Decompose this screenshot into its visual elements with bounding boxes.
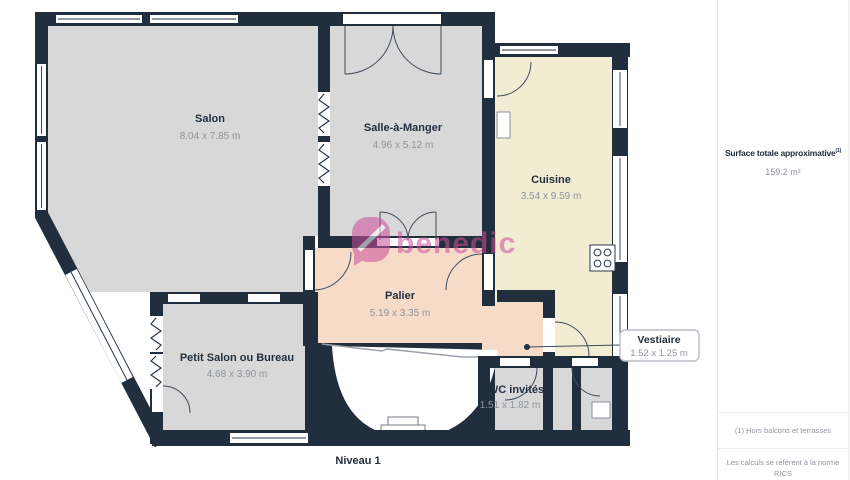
room-salon-floor (48, 26, 318, 292)
level-label: Niveau 1 (335, 455, 380, 467)
surface-title-sup: (1) (836, 148, 842, 154)
watermark-text: benedic (396, 227, 516, 260)
room-vestiaire-floor (482, 302, 543, 358)
floorplan-viewer: Salon 8.04 x 7.85 m Salle-à-Manger 4.96 … (0, 0, 850, 480)
label-salle-a-manger: Salle-à-Manger (364, 122, 443, 134)
label-salon: Salon (195, 113, 225, 125)
surface-total-block: Surface totale approximative(1) 159.2 m² (718, 148, 848, 177)
stove-icon (590, 245, 615, 271)
callout-dims: 1.52 x 1.25 m (630, 348, 688, 359)
dims-palier: 5.19 x 3.35 m (370, 308, 431, 319)
label-wc: WC invités (488, 384, 544, 396)
panel-footnotes: (1) Hors balcons et terrasses Les calcul… (718, 412, 848, 480)
dims-salle-a-manger: 4.96 x 5.12 m (373, 140, 434, 151)
dims-petit-salon: 4.68 x 3.90 m (207, 369, 268, 380)
label-palier: Palier (385, 290, 416, 302)
surface-total-title: Surface totale approximative(1) (722, 148, 844, 158)
footnote-rics-line1: Les calculs se réfèrent à la norme RICS (727, 458, 840, 478)
callout-anchor-dot (524, 344, 530, 350)
dims-wc: 1.51 x 1.82 m (480, 400, 541, 411)
appliance-icon (592, 402, 610, 418)
footnote-balconies: (1) Hors balcons et terrasses (718, 412, 848, 448)
closet-1-floor (553, 366, 572, 430)
info-panel: Surface totale approximative(1) 159.2 m²… (717, 0, 849, 480)
dims-cuisine: 3.54 x 9.59 m (521, 191, 582, 202)
footnote-rics: Les calculs se réfèrent à la norme RICS … (718, 448, 848, 480)
dims-salon: 8.04 x 7.85 m (180, 131, 241, 142)
surface-total-value: 159.2 m² (722, 167, 844, 177)
room-petit-salon-floor (163, 303, 305, 430)
floor-plan: Salon 8.04 x 7.85 m Salle-à-Manger 4.96 … (0, 0, 717, 480)
callout-name: Vestiaire (637, 334, 680, 346)
label-petit-salon: Petit Salon ou Bureau (180, 352, 294, 364)
sink-cabinet-icon (497, 112, 510, 138)
label-cuisine: Cuisine (531, 174, 571, 186)
closet-2-floor (581, 366, 612, 430)
surface-title-text: Surface totale approximative (725, 148, 836, 158)
